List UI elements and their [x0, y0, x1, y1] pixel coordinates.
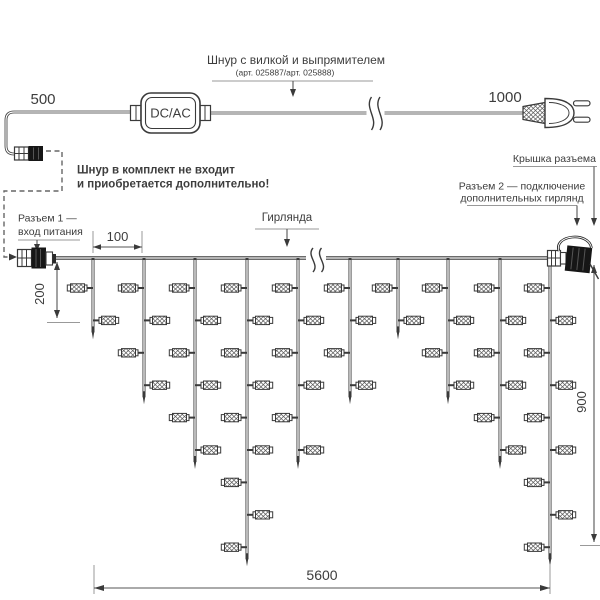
mains-plug-icon — [523, 99, 590, 128]
bulb-icon — [324, 349, 350, 357]
bulb-icon — [144, 381, 170, 389]
garland-drops — [67, 258, 575, 566]
bulb-icon — [247, 316, 273, 324]
bulb-icon — [350, 316, 376, 324]
connector2-line1: Разъем 2 — подключение — [459, 181, 586, 193]
drop-tip — [447, 395, 450, 404]
garland-drop — [118, 258, 169, 404]
garland-drop — [324, 258, 375, 404]
bulb-icon — [118, 284, 144, 292]
connector2-annotation: Разъем 2 — подключение дополнительных ги… — [459, 181, 586, 227]
plug-prong — [574, 101, 591, 106]
cord-article: (арт. 025887/арт. 025888) — [236, 68, 335, 78]
dim-5600: 5600 — [94, 565, 550, 594]
drop-tip — [499, 460, 502, 469]
bulb-icon — [221, 413, 247, 421]
arrow-down-icon — [284, 239, 290, 247]
arrow-right-icon — [9, 254, 17, 261]
garland-label: Гирлянда — [262, 212, 313, 224]
bulb-icon — [247, 381, 273, 389]
cap-label: Крышка разъема — [513, 153, 596, 165]
bulb-icon — [298, 446, 324, 454]
bulb-icon — [550, 381, 576, 389]
bulb-icon — [93, 316, 119, 324]
garland-annotation: Гирлянда — [255, 212, 319, 247]
garland-top-wire — [55, 248, 556, 272]
bulb-icon — [524, 413, 550, 421]
cord-title: Шнур с вилкой и выпрямителем — [207, 53, 385, 67]
cord-annotation: Шнур с вилкой и выпрямителем (арт. 02588… — [207, 53, 385, 97]
plug-cable-grip — [523, 103, 545, 124]
drop-tip — [297, 460, 300, 469]
bulb-icon — [474, 284, 500, 292]
dcac-converter: DC/AC — [131, 93, 211, 133]
dim-900: 900 — [574, 265, 600, 546]
bulb-icon — [67, 284, 93, 292]
bulb-icon — [298, 381, 324, 389]
garland-diagram: DC/AC Шнур с вилкой и выпрямителем (арт.… — [0, 0, 600, 600]
drop-tip — [549, 557, 552, 566]
bulb-icon — [422, 284, 448, 292]
drop-tip — [246, 557, 249, 566]
bulb-icon — [169, 284, 195, 292]
drop-tip — [143, 395, 146, 404]
dim-100: 100 — [93, 229, 142, 253]
garland-drop — [67, 258, 118, 339]
bulb-icon — [118, 349, 144, 357]
dcac-label: DC/AC — [150, 106, 190, 121]
garland-drop — [474, 258, 525, 469]
bulb-icon — [398, 316, 424, 324]
bulb-icon — [550, 316, 576, 324]
bulb-icon — [524, 349, 550, 357]
bulb-icon — [500, 316, 526, 324]
bulb-icon — [324, 284, 350, 292]
bulb-icon — [422, 349, 448, 357]
note-line1: Шнур в комплект не входит — [77, 165, 235, 177]
dim-1000: 1000 — [488, 89, 521, 106]
bulb-icon — [247, 511, 273, 519]
drop-tip — [397, 330, 400, 339]
note-line2: и приобретается дополнительно! — [77, 179, 269, 191]
arrow-down-icon — [574, 218, 580, 226]
bulb-icon — [474, 413, 500, 421]
bulb-icon — [500, 381, 526, 389]
bulb-icon — [272, 349, 298, 357]
bulb-icon — [350, 381, 376, 389]
bulb-icon — [144, 316, 170, 324]
bulb-icon — [272, 413, 298, 421]
garland-drop — [422, 258, 473, 404]
garland-drop — [524, 258, 575, 566]
bulb-icon — [247, 446, 273, 454]
dim-200-value: 200 — [32, 283, 47, 305]
bulb-icon — [448, 381, 474, 389]
not-included-note: Шнур в комплект не входит и приобретаетс… — [4, 151, 269, 261]
bulb-icon — [524, 478, 550, 486]
connector1-annotation: Разъем 1 — вход питания — [18, 213, 83, 252]
connector2-line2: дополнительных гирлянд — [460, 193, 583, 205]
dashed-link-line — [4, 151, 62, 257]
bulb-icon — [195, 316, 221, 324]
bulb-icon — [169, 413, 195, 421]
drop-tip — [194, 460, 197, 469]
cord-end-connector — [15, 146, 44, 161]
bulb-icon — [500, 446, 526, 454]
bulb-icon — [169, 349, 195, 357]
bulb-icon — [195, 381, 221, 389]
arrow-down-icon — [591, 218, 597, 226]
garland-drop — [221, 258, 272, 566]
bulb-icon — [195, 446, 221, 454]
bulb-icon — [221, 478, 247, 486]
bulb-icon — [221, 349, 247, 357]
diagram-canvas: DC/AC Шнур с вилкой и выпрямителем (арт.… — [0, 0, 600, 600]
garland-drop — [272, 258, 323, 469]
connector1-line1: Разъем 1 — — [18, 213, 77, 225]
drop-tip — [349, 395, 352, 404]
bulb-icon — [550, 511, 576, 519]
garland-drop — [372, 258, 423, 339]
bulb-icon — [221, 543, 247, 551]
connector2 — [548, 237, 599, 279]
arrow-down-icon — [290, 89, 296, 97]
bulb-icon — [474, 349, 500, 357]
bulb-icon — [550, 446, 576, 454]
bulb-icon — [524, 543, 550, 551]
dim-900-value: 900 — [574, 391, 589, 413]
dim-100-value: 100 — [107, 229, 129, 244]
dim-500: 500 — [30, 91, 55, 108]
bulb-icon — [272, 284, 298, 292]
plug-prong — [574, 117, 591, 122]
dim-5600-value: 5600 — [306, 567, 337, 583]
garland-drop — [169, 258, 220, 469]
drop-tip — [92, 330, 95, 339]
connector1 — [18, 248, 57, 269]
bulb-icon — [298, 316, 324, 324]
connector1-line2: вход питания — [18, 226, 83, 238]
bulb-icon — [448, 316, 474, 324]
bulb-icon — [372, 284, 398, 292]
bulb-icon — [524, 284, 550, 292]
bulb-icon — [221, 284, 247, 292]
